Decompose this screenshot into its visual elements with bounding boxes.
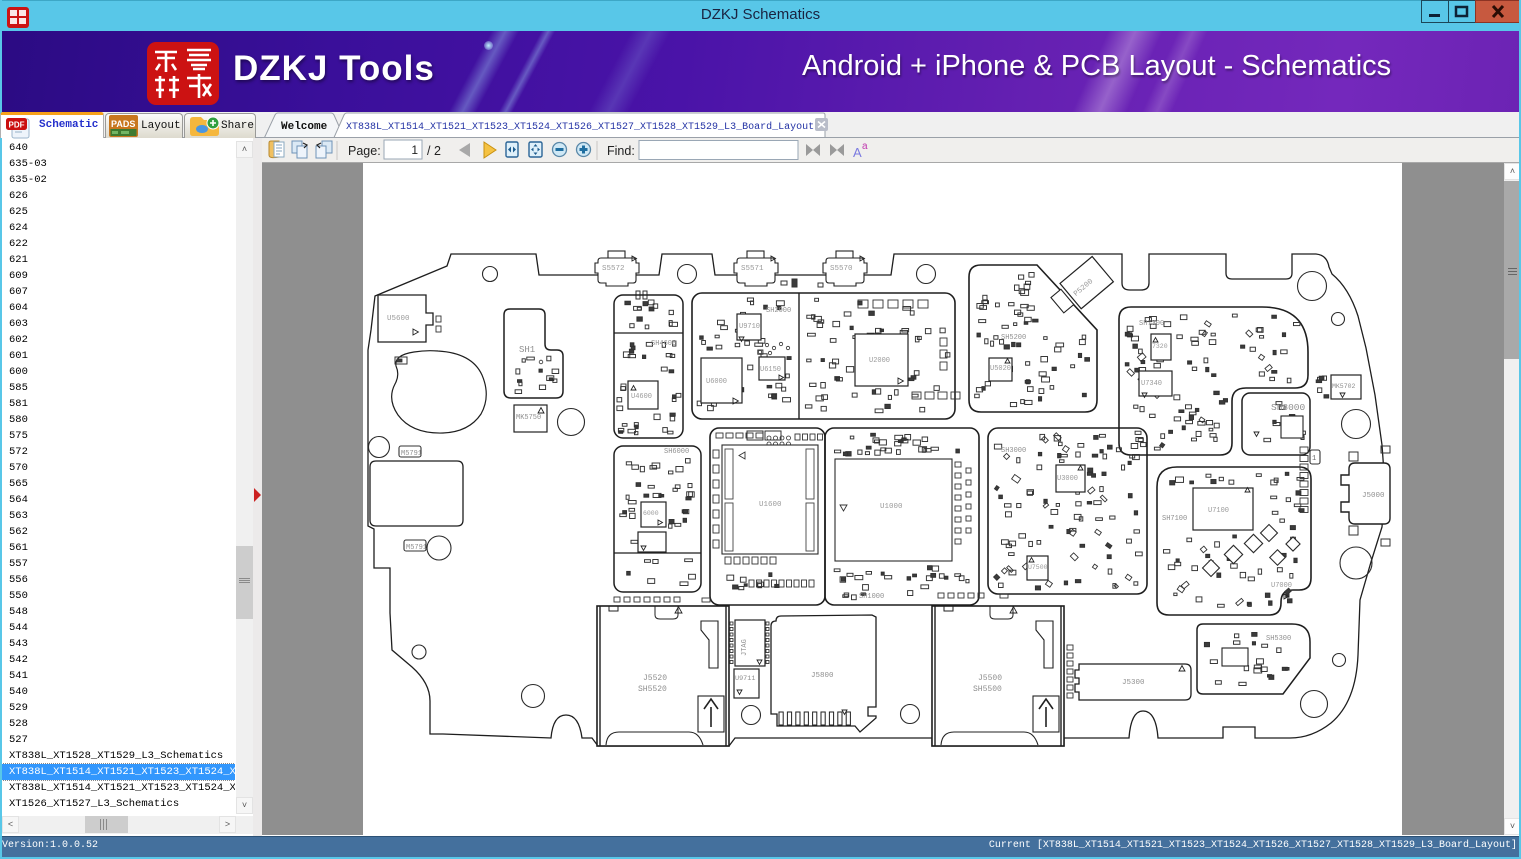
svg-text:U3000: U3000 bbox=[1057, 475, 1078, 483]
svg-text:SH4600: SH4600 bbox=[651, 340, 676, 348]
svg-text:M5791: M5791 bbox=[401, 450, 422, 458]
svg-text:S5571: S5571 bbox=[741, 265, 764, 273]
svg-text:SH5200: SH5200 bbox=[1001, 334, 1026, 342]
svg-text:U4600: U4600 bbox=[631, 393, 652, 401]
svg-text:U7100: U7100 bbox=[1208, 507, 1229, 515]
svg-text:U6000: U6000 bbox=[706, 378, 727, 386]
svg-text:PADS: PADS bbox=[111, 119, 135, 129]
svg-text:U7340: U7340 bbox=[1141, 380, 1162, 388]
svg-text:J5300: J5300 bbox=[1122, 679, 1145, 687]
svg-text:7320: 7320 bbox=[1152, 343, 1168, 350]
svg-text:JTAG: JTAG bbox=[741, 639, 749, 656]
svg-text:1: 1 bbox=[411, 143, 418, 157]
svg-text:M5791: M5791 bbox=[406, 544, 427, 552]
svg-text:U7500: U7500 bbox=[1028, 564, 1048, 571]
svg-text:J5520: J5520 bbox=[643, 674, 667, 683]
svg-text:U7000: U7000 bbox=[1271, 582, 1292, 590]
svg-text:SH7300: SH7300 bbox=[1139, 320, 1164, 328]
svg-text:SH5520: SH5520 bbox=[638, 685, 667, 694]
svg-text:A: A bbox=[853, 145, 862, 160]
svg-text:U9710: U9710 bbox=[739, 323, 760, 331]
svg-text:SH5300: SH5300 bbox=[1266, 635, 1291, 643]
svg-text:J5800: J5800 bbox=[811, 672, 834, 680]
svg-text:SH2000: SH2000 bbox=[766, 307, 791, 315]
svg-text:SH1: SH1 bbox=[519, 345, 535, 355]
svg-text:J5000: J5000 bbox=[1362, 492, 1385, 500]
svg-text:S5572: S5572 bbox=[602, 265, 625, 273]
svg-text:a: a bbox=[862, 141, 868, 152]
svg-text:Welcome: Welcome bbox=[281, 121, 328, 133]
svg-text:Find:: Find: bbox=[607, 144, 635, 158]
svg-text:U2000: U2000 bbox=[869, 357, 890, 365]
svg-text:SH8000: SH8000 bbox=[1271, 402, 1306, 413]
svg-text:MK5750: MK5750 bbox=[516, 414, 541, 422]
svg-text:PDF: PDF bbox=[9, 121, 25, 130]
svg-text:J5500: J5500 bbox=[978, 674, 1002, 683]
svg-text:Page:: Page: bbox=[348, 144, 381, 158]
svg-text:MK5702: MK5702 bbox=[1332, 383, 1356, 390]
svg-text:SH6000: SH6000 bbox=[664, 448, 689, 456]
svg-text:/ 2: / 2 bbox=[427, 144, 441, 158]
svg-text:1: 1 bbox=[1312, 455, 1316, 463]
svg-text:U6150: U6150 bbox=[760, 366, 781, 374]
svg-text:SH3000: SH3000 bbox=[1001, 447, 1026, 455]
svg-text:XT838L_XT1514_XT1521_XT1523_XT: XT838L_XT1514_XT1521_XT1523_XT1524_XT152… bbox=[346, 121, 814, 133]
svg-text:U1000: U1000 bbox=[880, 503, 903, 511]
svg-text:U1600: U1600 bbox=[759, 501, 782, 509]
svg-text:U5020: U5020 bbox=[990, 365, 1011, 373]
svg-text:6000: 6000 bbox=[643, 510, 659, 517]
svg-text:U9711: U9711 bbox=[735, 675, 755, 683]
svg-text:U5600: U5600 bbox=[387, 315, 410, 323]
svg-text:SH1000: SH1000 bbox=[859, 593, 884, 601]
svg-text:SH7100: SH7100 bbox=[1162, 515, 1187, 523]
svg-text:S5570: S5570 bbox=[830, 265, 853, 273]
svg-text:SH5500: SH5500 bbox=[973, 685, 1002, 694]
